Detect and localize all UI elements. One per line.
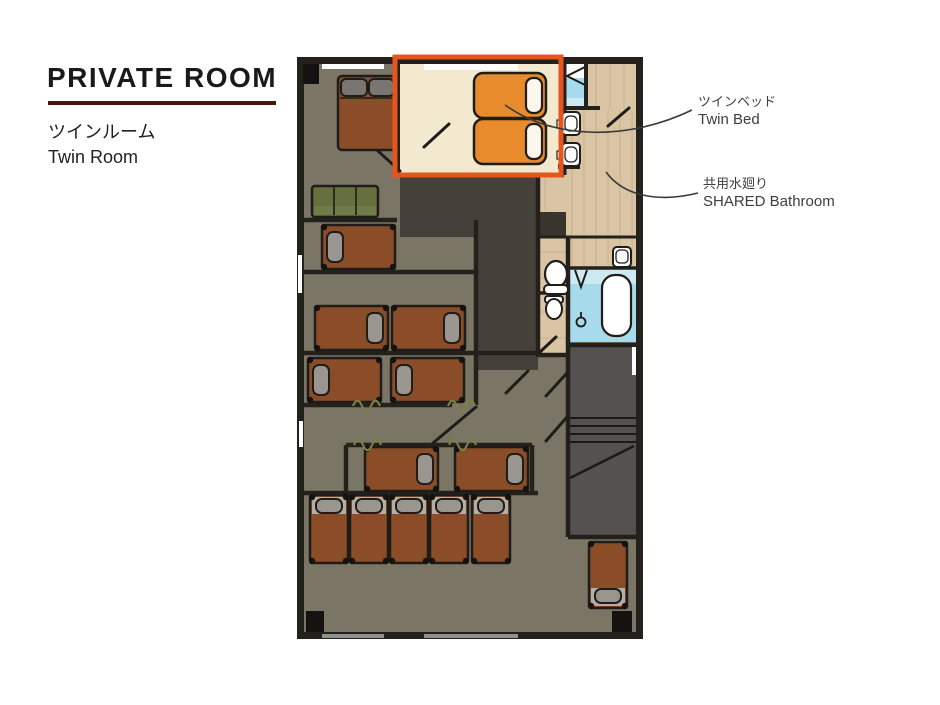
double-bed-icon [338,76,397,150]
single-bed-icon [314,305,389,351]
single-bed-icon [390,357,465,403]
twin-bed-callout: ツインベッド Twin Bed [698,93,776,129]
twin-bed-label-en: Twin Bed [698,110,776,129]
single-bed-icon [349,494,389,564]
toilet-icon [544,261,568,294]
closet-block [538,212,566,237]
single-bed-icon [429,494,469,564]
single-bed-icon [309,494,349,564]
twin-bed-label-jp: ツインベッド [698,93,776,110]
shared-bathroom-callout: 共用水廻り SHARED Bathroom [703,175,835,211]
sink-icon [613,247,631,267]
single-bed-icon [588,541,628,609]
twin-bed-icon [474,119,546,164]
room-name-japanese: ツインルーム [48,118,155,144]
page-title: PRIVATE ROOM [47,62,277,94]
title-underline [48,101,276,105]
shared-bathroom-label-en: SHARED Bathroom [703,192,835,211]
shared-bathroom-label-jp: 共用水廻り [703,175,835,192]
single-bed-icon [391,305,466,351]
single-bed-icon [321,224,396,270]
single-bed-icon [364,446,439,492]
single-bed-icon [389,494,429,564]
room-name-english: Twin Room [48,147,138,168]
stairs-icon [568,345,636,537]
floorplan [0,0,940,705]
single-bed-icon [454,446,529,492]
single-bed-icon [307,357,382,403]
single-bed-icon [471,494,511,564]
shower-icon [564,64,586,107]
toilet-icon [545,296,563,319]
twin-bed-icon [474,73,546,118]
sofa-icon [312,186,378,217]
